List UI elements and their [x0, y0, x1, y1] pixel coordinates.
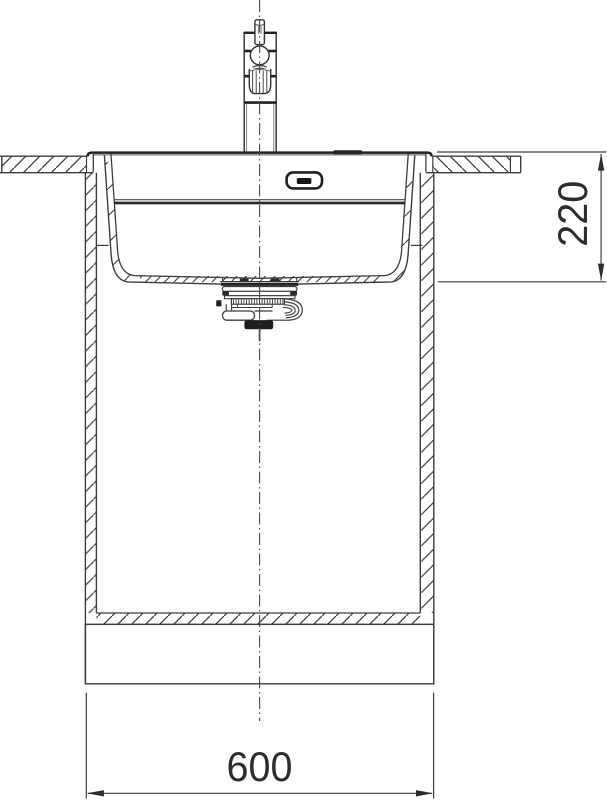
svg-text:220: 220	[549, 181, 596, 247]
svg-text:600: 600	[227, 743, 293, 790]
